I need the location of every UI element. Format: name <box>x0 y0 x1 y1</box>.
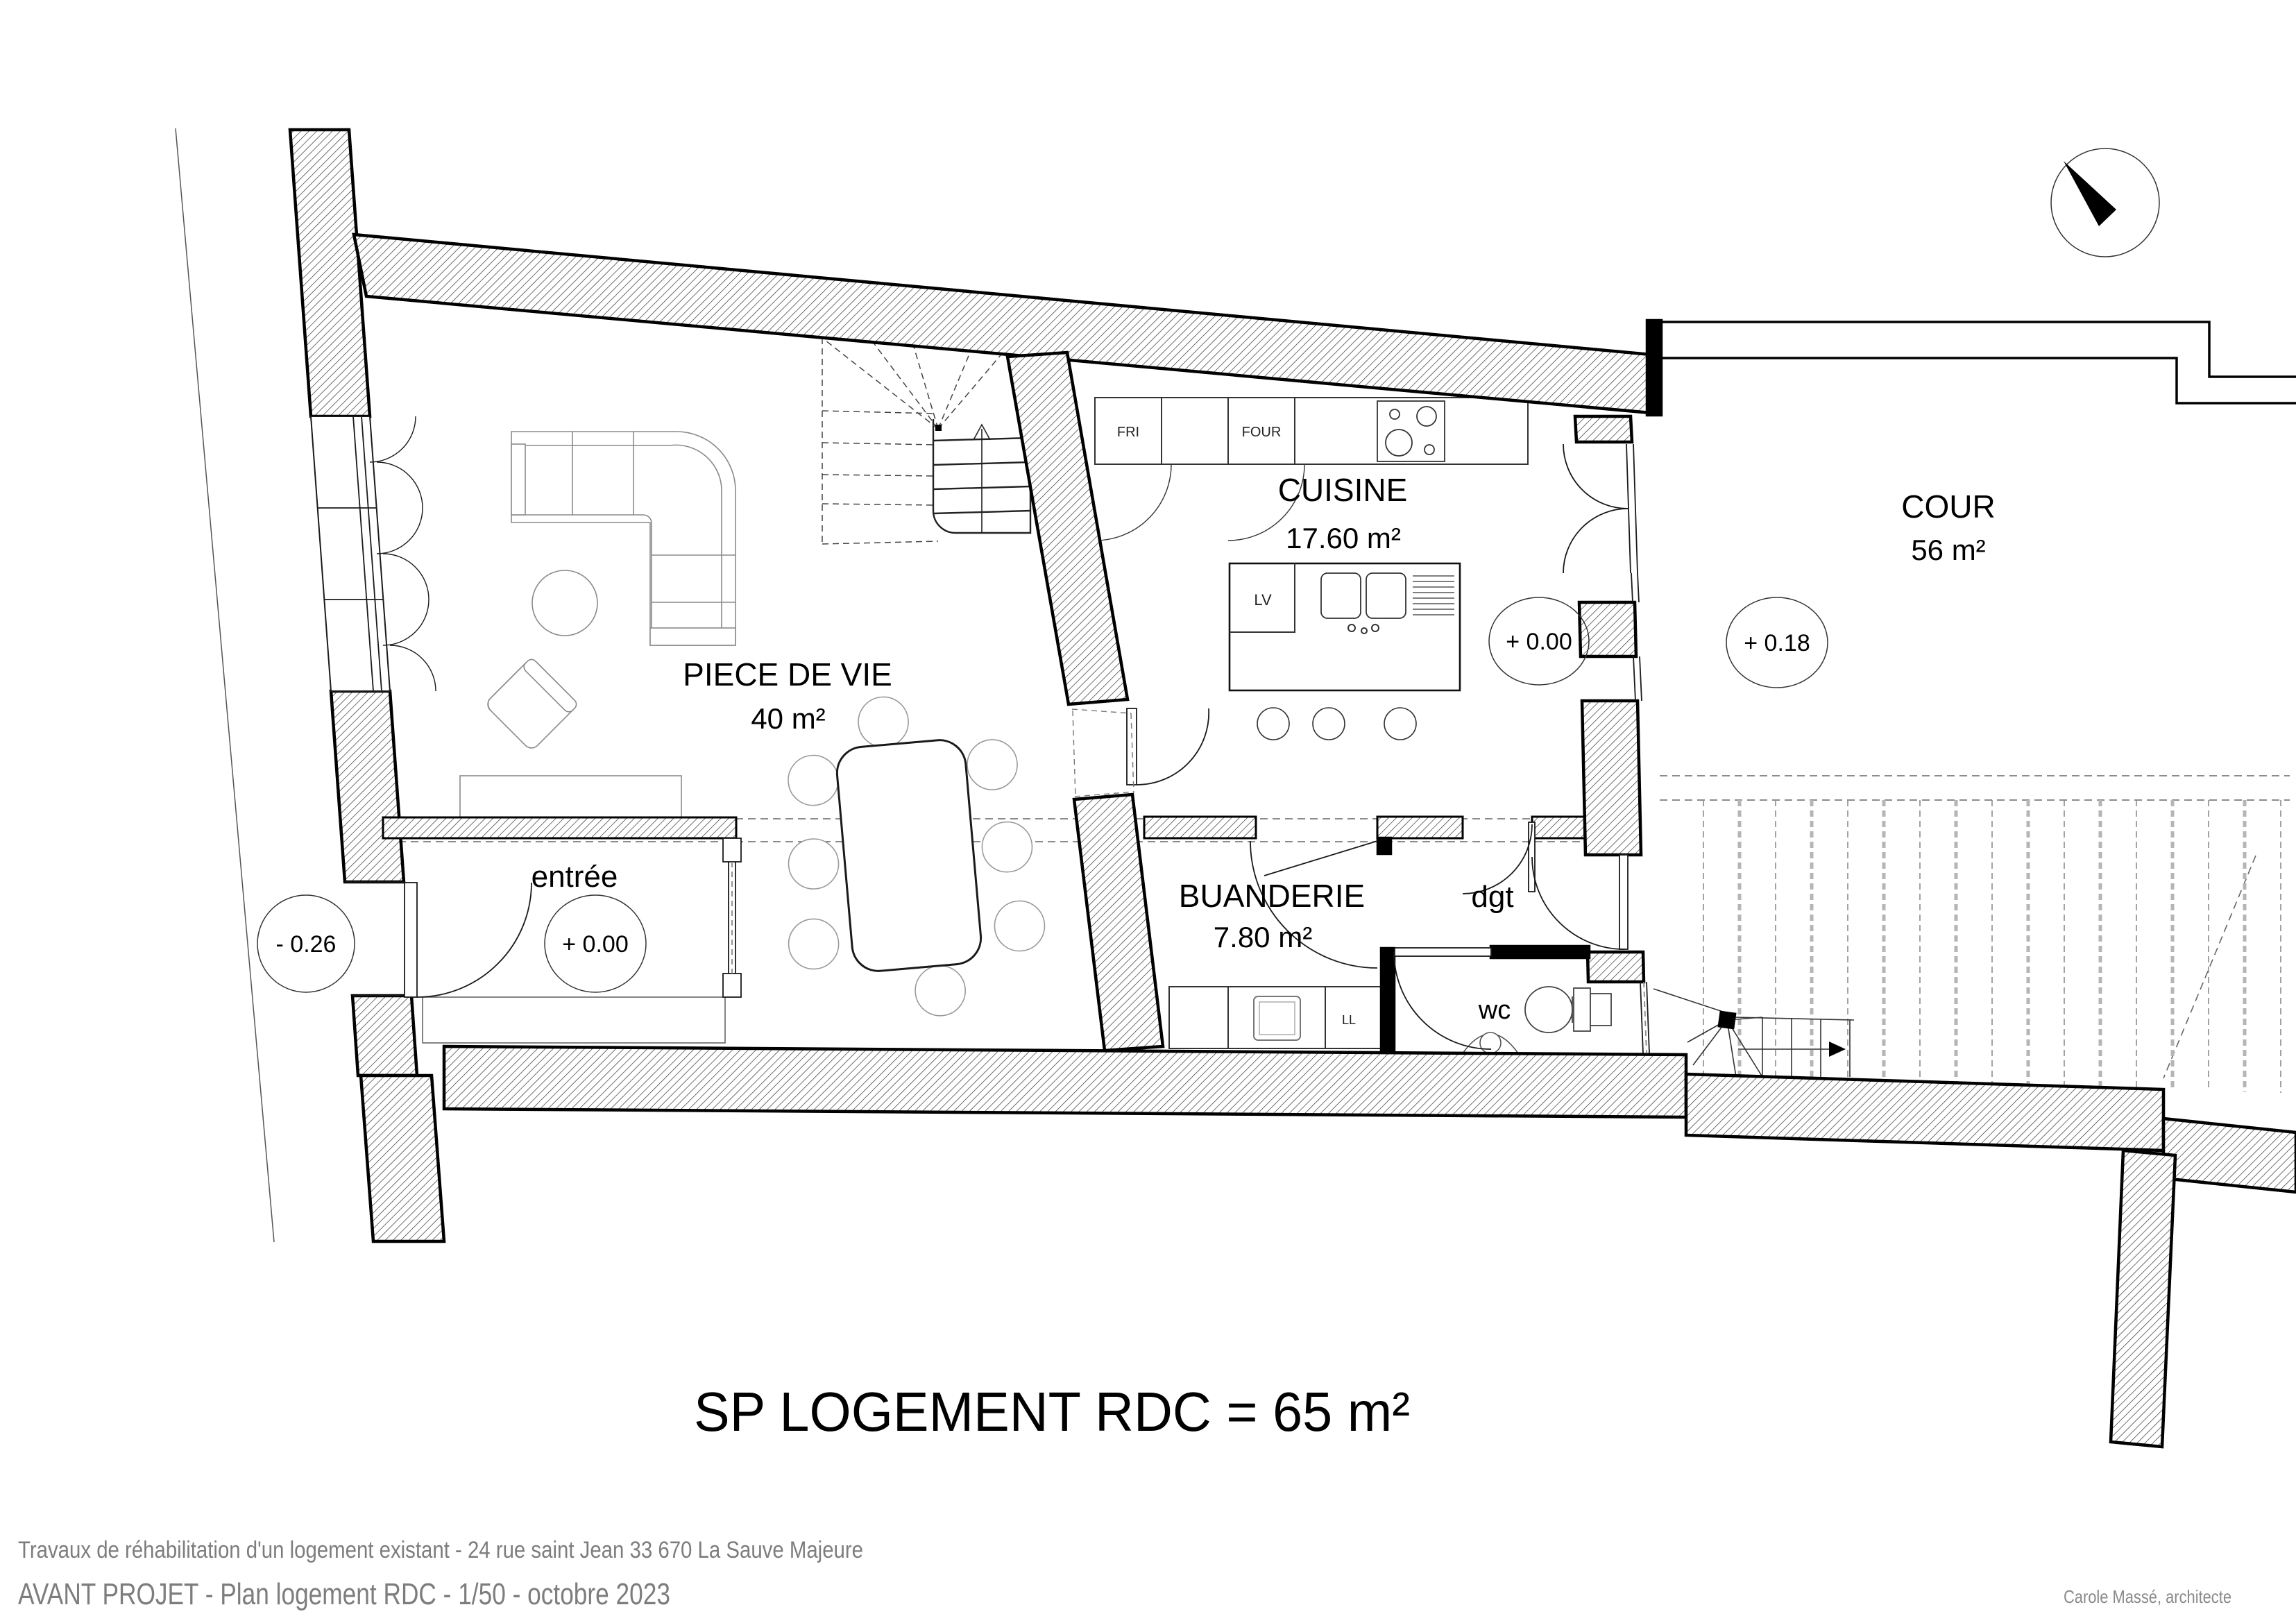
new-wall-wc-west <box>1381 949 1394 1051</box>
room-area-laundry: 7.80 m² <box>1214 921 1312 953</box>
stool <box>1384 708 1416 740</box>
architect-credit: Carole Massé, architecte <box>2064 1586 2231 1607</box>
sink-right <box>1366 573 1406 618</box>
fridge-door-swing <box>1095 464 1171 541</box>
door-hall-court <box>1532 855 1628 949</box>
room-label-entry: entrée <box>532 860 618 894</box>
wall-bottom <box>444 1046 1686 1117</box>
armchair <box>484 657 579 751</box>
property-step-line-outer <box>1658 322 2296 377</box>
room-area-kitchen: 17.60 m² <box>1286 522 1401 554</box>
wall-court-pier-1 <box>1575 416 1632 442</box>
wall-hall-north <box>1532 817 1589 838</box>
wall-court-pier-3 <box>1588 952 1644 982</box>
entry-glazed-partition <box>723 838 741 997</box>
wall-laundry-north-1 <box>1144 817 1256 838</box>
kitchen-counter <box>1095 398 1528 464</box>
sheet-title: SP LOGEMENT RDC = 65 m² <box>694 1381 1410 1443</box>
room-label-wc: wc <box>1478 996 1511 1025</box>
faucet <box>1348 624 1355 631</box>
toilet <box>1525 987 1611 1033</box>
oven-label: FOUR <box>1242 425 1282 440</box>
room-label-laundry: BUANDERIE <box>1179 878 1365 914</box>
new-wall-wc-north <box>1491 946 1589 958</box>
level-kitchen: + 0.00 <box>1506 629 1572 655</box>
dining-table <box>835 738 983 974</box>
left-windows <box>311 416 436 691</box>
wall-junction-court <box>1647 321 1661 415</box>
wall-left-lower <box>352 996 417 1076</box>
floor-plan-sheet: - 0.26 + 0.00 + 0.00 + 0.18 PIECE DE VIE… <box>0 0 2296 1623</box>
washer-label: LL <box>1342 1013 1356 1027</box>
entrance-door <box>345 882 532 997</box>
dining-set <box>768 685 1052 1028</box>
wall-left-mid <box>331 691 404 882</box>
wall-left-upper <box>290 130 370 416</box>
wall-left-stub <box>361 1076 444 1241</box>
wall-court-south <box>1686 1074 2163 1150</box>
footer-phase-line: AVANT PROJET - Plan logement RDC - 1/50 … <box>18 1577 670 1611</box>
level-court: + 0.18 <box>1744 630 1810 656</box>
door-wc <box>1394 948 1491 1049</box>
dishwasher-label: LV <box>1254 591 1272 609</box>
main-stair <box>822 335 1030 544</box>
level-entry: + 0.00 <box>562 931 628 958</box>
hand-basin <box>1463 1033 1518 1053</box>
room-label-living: PIECE DE VIE <box>683 656 892 692</box>
wall-right-stub <box>2111 1150 2175 1447</box>
new-wall-stub <box>1378 838 1391 853</box>
fridge-label: FRI <box>1117 425 1139 440</box>
wall-court-south-step <box>2163 1119 2296 1192</box>
room-area-living: 40 m² <box>751 702 825 735</box>
level-street: - 0.26 <box>276 931 337 958</box>
wall-court-block <box>1582 701 1641 855</box>
stool <box>1313 708 1345 740</box>
stool <box>1257 708 1289 740</box>
sink-left <box>1321 573 1361 618</box>
north-arrow <box>2051 148 2159 257</box>
room-label-kitchen: CUISINE <box>1278 472 1408 508</box>
door-living-kitchen <box>1072 708 1209 798</box>
living-furniture <box>423 432 1052 1043</box>
room-label-court: COUR <box>1901 488 1995 525</box>
court-french-doors <box>1563 444 1638 573</box>
kitchen-island <box>1230 563 1460 690</box>
sideboard <box>460 776 681 817</box>
room-label-hall: dgt <box>1471 880 1513 914</box>
property-step-line-inner <box>1658 358 2296 403</box>
wall-laundry-north-2 <box>1377 817 1463 838</box>
coffee-table <box>532 570 597 636</box>
room-area-court: 56 m² <box>1911 534 1985 566</box>
footer-project-line: Travaux de réhabilitation d'un logement … <box>18 1537 863 1563</box>
kitchen-fittings <box>1095 398 1528 740</box>
cooktop <box>1377 401 1445 461</box>
stair-newel-post <box>1717 1010 1736 1029</box>
court-stair-arrow <box>1829 1042 1846 1057</box>
entry-bench <box>423 997 725 1043</box>
wall-entry-rail <box>383 817 736 838</box>
wall-top <box>354 235 1658 414</box>
court-diagonal-dashed <box>2163 856 2256 1078</box>
